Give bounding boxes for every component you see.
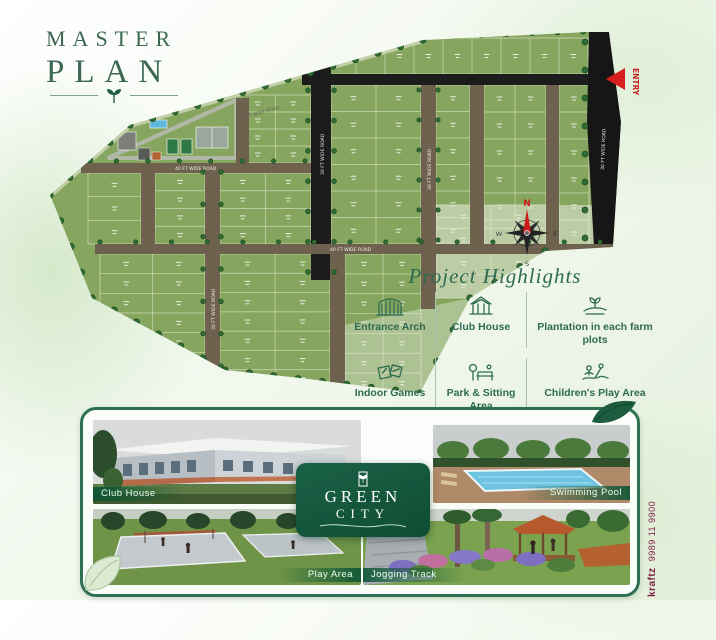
credit-line: kraftz 9989 11 9900 <box>647 501 658 597</box>
svg-text:40 FT WIDE ROAD: 40 FT WIDE ROAD <box>175 166 217 172</box>
club-house-icon <box>466 294 496 318</box>
entrance-arch-icon <box>375 294 405 318</box>
photo-swimming-pool[interactable]: Swimming Pool <box>433 425 630 503</box>
main-road <box>302 74 592 85</box>
svg-text:E: E <box>553 230 557 238</box>
highlight-club-house: Club House <box>435 292 527 348</box>
park-sitting-icon <box>466 360 496 384</box>
highlight-children-play: Children's Play Area <box>527 358 663 414</box>
brand-name-line1: GREEN <box>325 487 402 507</box>
photo-label: Swimming Pool <box>520 486 630 500</box>
building-shape <box>138 148 150 160</box>
indoor-games-icon <box>375 360 405 384</box>
highlight-park-sitting: Park & Sitting Area <box>435 358 527 414</box>
svg-text:W: W <box>496 230 503 238</box>
credit-brand: kraftz <box>647 567 658 597</box>
photo-label: Jogging Track <box>363 568 467 582</box>
gallery-panel: Club House Swimming Pool <box>80 407 640 597</box>
brand-building-leaf-icon <box>354 471 372 487</box>
highlight-entrance-arch: Entrance Arch <box>345 292 435 348</box>
highlight-indoor-games: Indoor Games <box>345 358 435 414</box>
svg-text:40 FT WIDE ROAD: 40 FT WIDE ROAD <box>330 247 372 253</box>
credit-phone: 9989 11 9900 <box>647 501 657 561</box>
children-play-icon <box>580 360 610 384</box>
photo-label: Club House <box>93 487 186 501</box>
shed-shape <box>152 152 161 160</box>
highlight-plantation: Plantation in each farm plots <box>527 292 663 348</box>
svg-text:N: N <box>523 199 531 209</box>
court-shape <box>167 139 178 154</box>
plantation-icon <box>580 294 610 318</box>
svg-text:30 FT WIDE ROAD: 30 FT WIDE ROAD <box>211 288 217 330</box>
photo-label: Play Area <box>278 568 361 582</box>
brand-badge: GREEN CITY <box>296 463 430 537</box>
court-shape <box>181 139 192 154</box>
svg-text:30 FT WIDE ROAD: 30 FT WIDE ROAD <box>320 133 326 175</box>
brand-swirl <box>318 522 408 530</box>
svg-text:30 FT WIDE ROAD: 30 FT WIDE ROAD <box>427 148 433 190</box>
entry-label: ENTRY <box>631 68 640 96</box>
highlights-heading: Project Highlights <box>330 264 660 289</box>
highlights-grid: Entrance Arch Club House Plantation in e… <box>345 292 663 414</box>
brand-name-line2: CITY <box>336 506 390 522</box>
